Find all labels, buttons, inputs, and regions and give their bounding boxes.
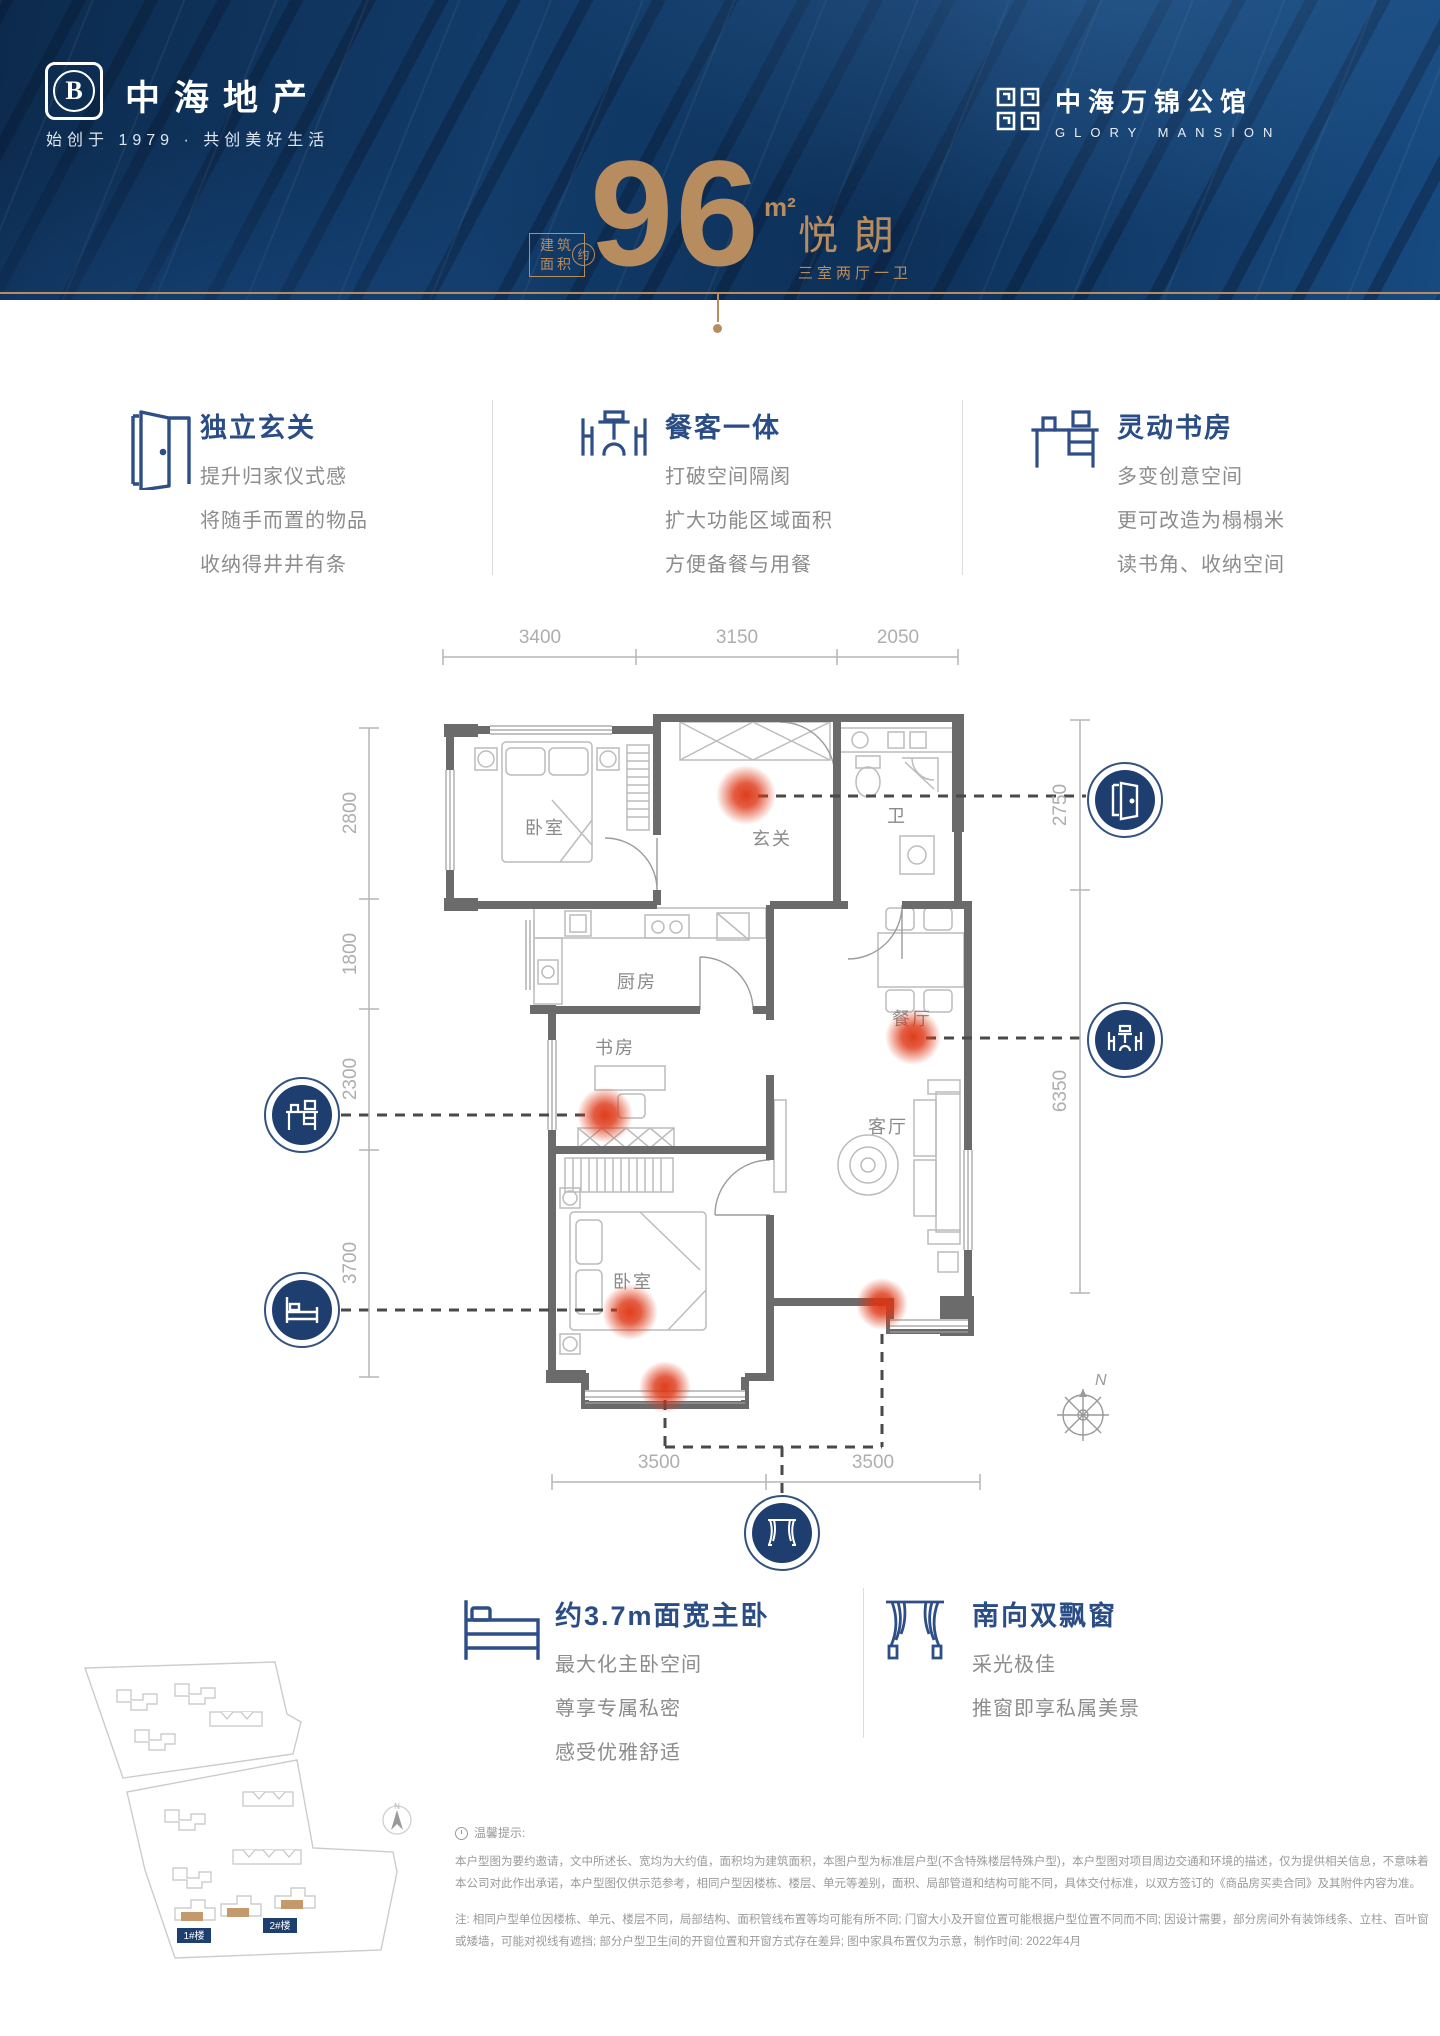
feature-title: 独立玄关: [200, 406, 368, 445]
brand-tagline: 始创于 1979 · 共创美好生活: [46, 126, 329, 150]
plan-layout: 三室两厅一卫: [798, 262, 912, 283]
dining-icon: [579, 408, 649, 460]
area-unit: m²: [764, 192, 796, 223]
dim-left-1: 2800: [340, 792, 361, 834]
dim-bottom-1: 3500: [638, 1452, 680, 1473]
gold-dot: [713, 324, 722, 333]
disclaimer-para1: 本户型图为要约邀请，文中所述长、宽均为大约值，面积均为建筑面积，本图户型为标准层…: [455, 1851, 1430, 1895]
disclaimer: 温馨提示: 本户型图为要约邀请，文中所述长、宽均为大约值，面积均为建筑面积，本图…: [455, 1822, 1430, 1967]
gold-tick: [717, 294, 719, 322]
feature-line: 收纳得井井有条: [200, 548, 368, 577]
bed-icon: [460, 1600, 544, 1660]
brand-right: 中海万锦公馆 GLORY MANSION: [995, 82, 1281, 140]
glory-mansion-logo-icon: [995, 86, 1041, 136]
feature-line: 感受优雅舒适: [555, 1736, 770, 1765]
room-label-bedroom1: 卧室: [525, 818, 565, 838]
room-label-living: 客厅: [868, 1117, 908, 1137]
brand-right-cn: 中海万锦公馆: [1055, 82, 1281, 119]
zhonghai-emblem-icon: B: [45, 62, 103, 120]
bed-callout-icon: [265, 1273, 339, 1347]
feature-line: 读书角、收纳空间: [1117, 548, 1285, 577]
dim-top-3: 2050: [877, 627, 919, 648]
feature-line: 多变创意空间: [1117, 460, 1285, 489]
dim-right-1: 2750: [1050, 784, 1071, 826]
brand-left-name: 中海地产: [125, 70, 321, 121]
dim-top-1: 3400: [519, 627, 561, 648]
feature-entry: 独立玄关 提升归家仪式感 将随手而置的物品 收纳得井井有条: [95, 400, 492, 575]
feature-line: 将随手而置的物品: [200, 504, 368, 533]
dim-top-2: 3150: [716, 627, 758, 648]
dining-callout-icon: [1088, 1003, 1162, 1077]
feature-line: 更可改造为榻榻米: [1117, 504, 1285, 533]
siteplan-badges: 1#楼 2#楼: [177, 1918, 297, 1943]
room-label-kitchen: 厨房: [617, 972, 657, 992]
dim-right-2: 6350: [1050, 1070, 1071, 1112]
features-top: 独立玄关 提升归家仪式感 将随手而置的物品 收纳得井井有条 餐客一体 打破空间隔…: [95, 400, 1385, 575]
desk-callout-icon: [265, 1078, 339, 1152]
feature-line: 推窗即享私属美景: [972, 1692, 1140, 1721]
feature-line: 尊享专属私密: [555, 1692, 770, 1721]
plan-name: 悦朗: [798, 203, 910, 261]
window-callout-icon: [745, 1496, 819, 1570]
area-label-top: 建筑: [540, 236, 574, 255]
disclaimer-title-row: 温馨提示:: [455, 1822, 1430, 1845]
door-callout-icon: [1088, 763, 1162, 837]
feature-baywindow: 南向双飘窗 采光极佳 推窗即享私属美景: [863, 1588, 1335, 1738]
room-label-entry: 玄关: [752, 829, 792, 849]
feature-dining: 餐客一体 打破空间隔阂 扩大功能区域面积 方便备餐与用餐: [492, 400, 962, 575]
feature-line: 扩大功能区域面积: [665, 504, 833, 533]
disclaimer-para2: 注: 相同户型单位因楼栋、单元、楼层不同，局部结构、面积管线布置等均可能有所不同…: [455, 1909, 1430, 1953]
area-label-bottom: 面积: [540, 255, 574, 274]
features-bottom: 约3.7m面宽主卧 最大化主卧空间 尊享专属私密 感受优雅舒适 南向双飘窗 采光…: [455, 1588, 1335, 1738]
feature-line: 方便备餐与用餐: [665, 548, 833, 577]
floorplan: 卧室 玄关 卫 厨房 书房 餐厅 客厅 卧室: [250, 600, 1200, 1600]
dim-bottom-2: 3500: [852, 1452, 894, 1473]
building2-badge: 2#楼: [269, 1919, 290, 1932]
clock-icon: [455, 1827, 468, 1840]
emblem-letter: B: [53, 70, 95, 112]
compass-icon: N: [1057, 1372, 1109, 1441]
door-icon: [125, 408, 197, 490]
feature-title: 灵动书房: [1117, 406, 1285, 445]
desk-icon: [1029, 408, 1101, 470]
feature-line: 提升归家仪式感: [200, 460, 368, 489]
room-labels: 卧室 玄关 卫 厨房 书房 餐厅 客厅 卧室: [525, 806, 932, 1292]
siteplan-buildings: [117, 1684, 315, 1920]
feature-master: 约3.7m面宽主卧 最大化主卧空间 尊享专属私密 感受优雅舒适: [455, 1588, 863, 1738]
building1-badge: 1#楼: [183, 1929, 204, 1942]
room-label-study: 书房: [595, 1038, 635, 1058]
area-value: 96: [590, 138, 761, 288]
callout-circles: [265, 763, 1162, 1570]
dim-left-4: 3700: [340, 1242, 361, 1284]
feature-title: 南向双飘窗: [972, 1594, 1140, 1633]
feature-line: 最大化主卧空间: [555, 1648, 770, 1677]
siteplan-north-label: N: [394, 1802, 400, 1811]
feature-title: 约3.7m面宽主卧: [555, 1594, 770, 1633]
poster: B 中海地产 始创于 1979 · 共创美好生活 中海万锦公馆 GLORY MA…: [0, 0, 1440, 2036]
dim-left-2: 1800: [340, 933, 361, 975]
siteplan: 1#楼 2#楼 N: [25, 1660, 435, 2000]
room-label-bath: 卫: [887, 806, 907, 826]
brand-right-en: GLORY MANSION: [1055, 125, 1281, 140]
hotspots: [577, 765, 941, 1413]
curtain-icon: [884, 1598, 946, 1664]
feature-study: 灵动书房 多变创意空间 更可改造为榻榻米 读书角、收纳空间: [962, 400, 1385, 575]
siteplan-north-icon: N: [383, 1802, 411, 1834]
feature-line: 打破空间隔阂: [665, 460, 833, 489]
brand-left: B 中海地产: [45, 62, 321, 121]
feature-title: 餐客一体: [665, 406, 833, 445]
dim-left-3: 2300: [340, 1058, 361, 1100]
compass-label: N: [1095, 1372, 1107, 1389]
feature-line: 采光极佳: [972, 1648, 1140, 1677]
disclaimer-title: 温馨提示:: [474, 1822, 525, 1845]
